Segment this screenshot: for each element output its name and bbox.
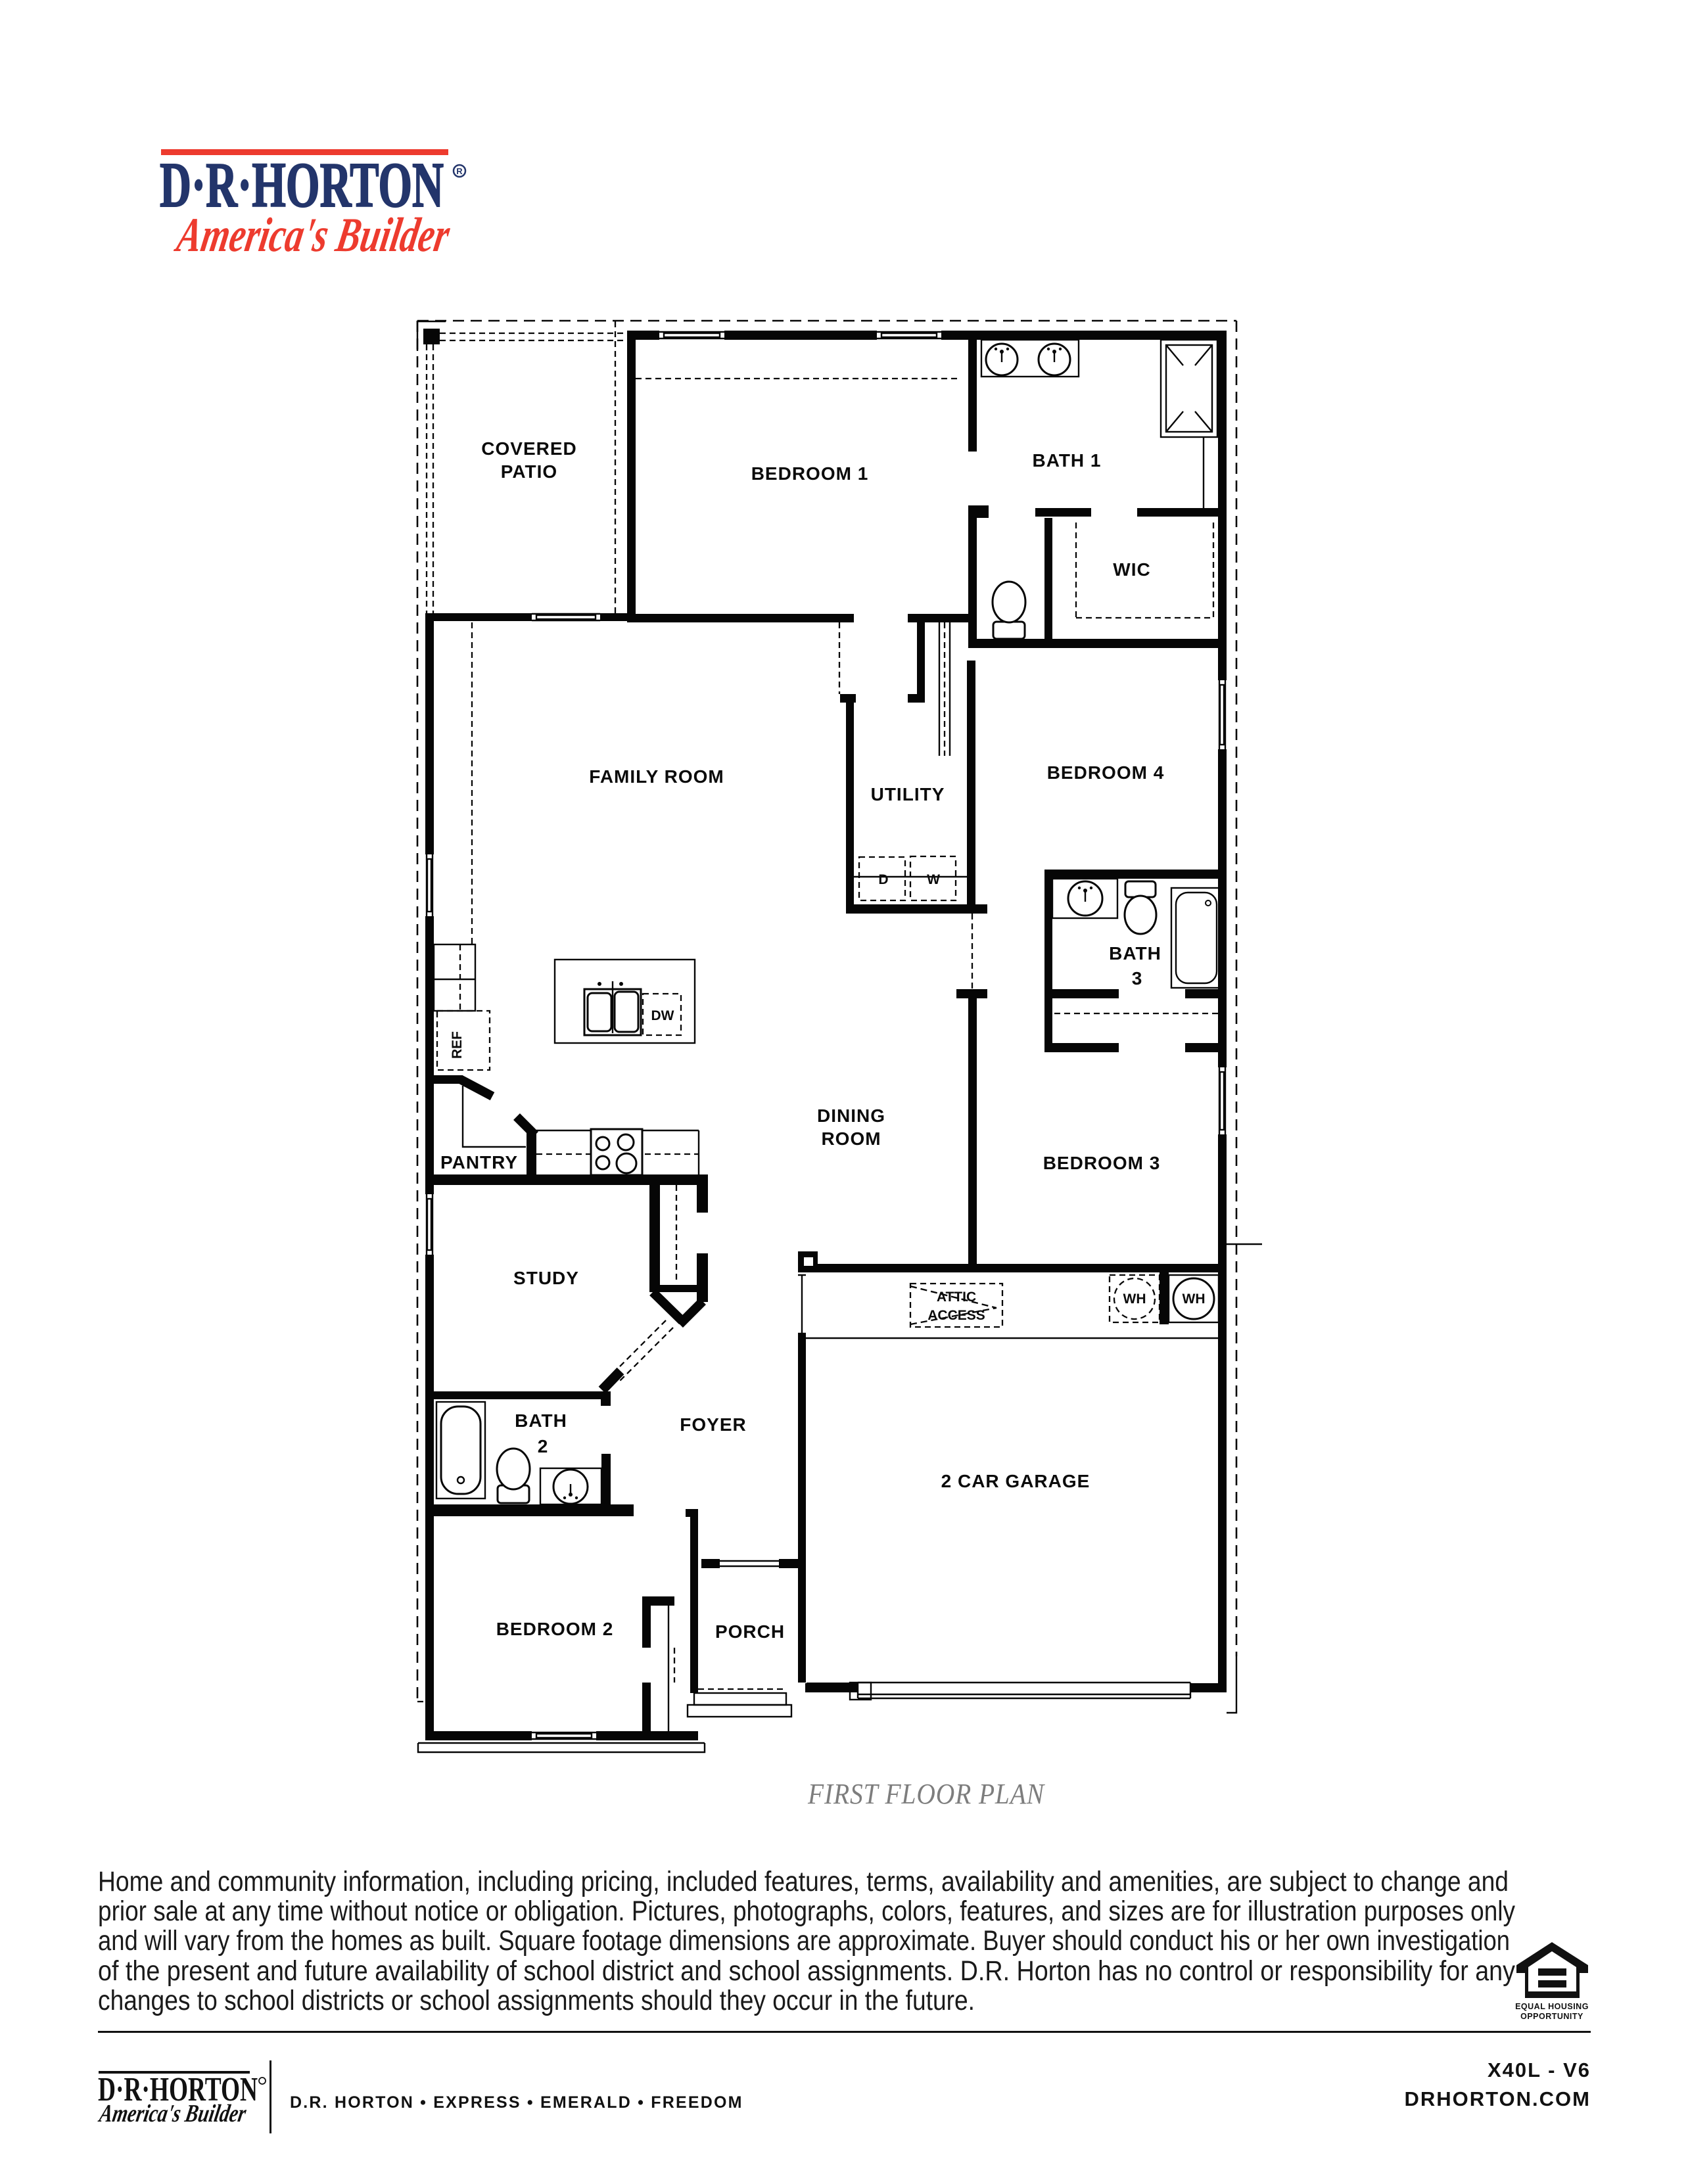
- svg-text:WIC: WIC: [1113, 559, 1150, 580]
- svg-text:ACCESS: ACCESS: [927, 1308, 985, 1323]
- svg-text:DRHORTON.COM: DRHORTON.COM: [1405, 2087, 1591, 2110]
- svg-text:America's Builder: America's Builder: [172, 208, 454, 262]
- svg-text:EQUAL HOUSING: EQUAL HOUSING: [1515, 2002, 1589, 2011]
- svg-text:UTILITY: UTILITY: [871, 784, 945, 804]
- svg-text:PATIO: PATIO: [501, 461, 557, 482]
- svg-text:D: D: [878, 872, 888, 887]
- svg-text:WH: WH: [1123, 1291, 1146, 1307]
- svg-text:PANTRY: PANTRY: [440, 1152, 518, 1173]
- svg-text:BATH: BATH: [515, 1410, 567, 1431]
- svg-text:changes to school districts or: changes to school districts or school as…: [98, 1986, 975, 2016]
- svg-text:BATH 1: BATH 1: [1032, 450, 1101, 471]
- svg-text:2: 2: [538, 1436, 549, 1456]
- svg-text:X40L - V6: X40L - V6: [1488, 2058, 1591, 2081]
- svg-text:D.R. HORTON • EXPRESS • EMERAL: D.R. HORTON • EXPRESS • EMERALD • FREEDO…: [290, 2093, 743, 2112]
- svg-text:BEDROOM 2: BEDROOM 2: [496, 1619, 614, 1639]
- svg-text:BEDROOM 4: BEDROOM 4: [1047, 762, 1165, 783]
- svg-text:W: W: [927, 872, 940, 887]
- svg-text:Home and community information: Home and community information, includin…: [98, 1867, 1509, 1897]
- svg-text:ROOM: ROOM: [821, 1128, 881, 1149]
- svg-text:BATH: BATH: [1109, 943, 1161, 964]
- svg-text:ATTIC: ATTIC: [937, 1289, 976, 1305]
- svg-text:3: 3: [1132, 968, 1143, 988]
- svg-text:America's Builder: America's Builder: [97, 2100, 249, 2127]
- svg-text:FIRST FLOOR PLAN: FIRST FLOOR PLAN: [807, 1778, 1045, 1810]
- svg-text:DINING: DINING: [817, 1105, 885, 1126]
- svg-text:BEDROOM 3: BEDROOM 3: [1043, 1153, 1161, 1173]
- svg-text:of the present and future avai: of the present and future availability o…: [98, 1956, 1516, 1987]
- svg-text:prior sale at any time without: prior sale at any time without notice or…: [98, 1896, 1516, 1927]
- svg-text:R: R: [456, 166, 463, 176]
- svg-text:OPPORTUNITY: OPPORTUNITY: [1520, 2012, 1583, 2021]
- svg-text:COVERED: COVERED: [481, 438, 576, 459]
- svg-text:FOYER: FOYER: [680, 1414, 746, 1435]
- svg-text:WH: WH: [1183, 1291, 1206, 1307]
- svg-text:BEDROOM 1: BEDROOM 1: [751, 463, 869, 484]
- svg-text:2 CAR GARAGE: 2 CAR GARAGE: [941, 1471, 1090, 1491]
- svg-text:FAMILY ROOM: FAMILY ROOM: [589, 766, 724, 787]
- svg-text:STUDY: STUDY: [513, 1268, 579, 1288]
- svg-text:DW: DW: [651, 1008, 674, 1023]
- svg-text:REF: REF: [450, 1031, 465, 1059]
- svg-text:PORCH: PORCH: [715, 1621, 785, 1642]
- svg-text:and will vary from the homes a: and will vary from the homes as built. S…: [98, 1926, 1510, 1957]
